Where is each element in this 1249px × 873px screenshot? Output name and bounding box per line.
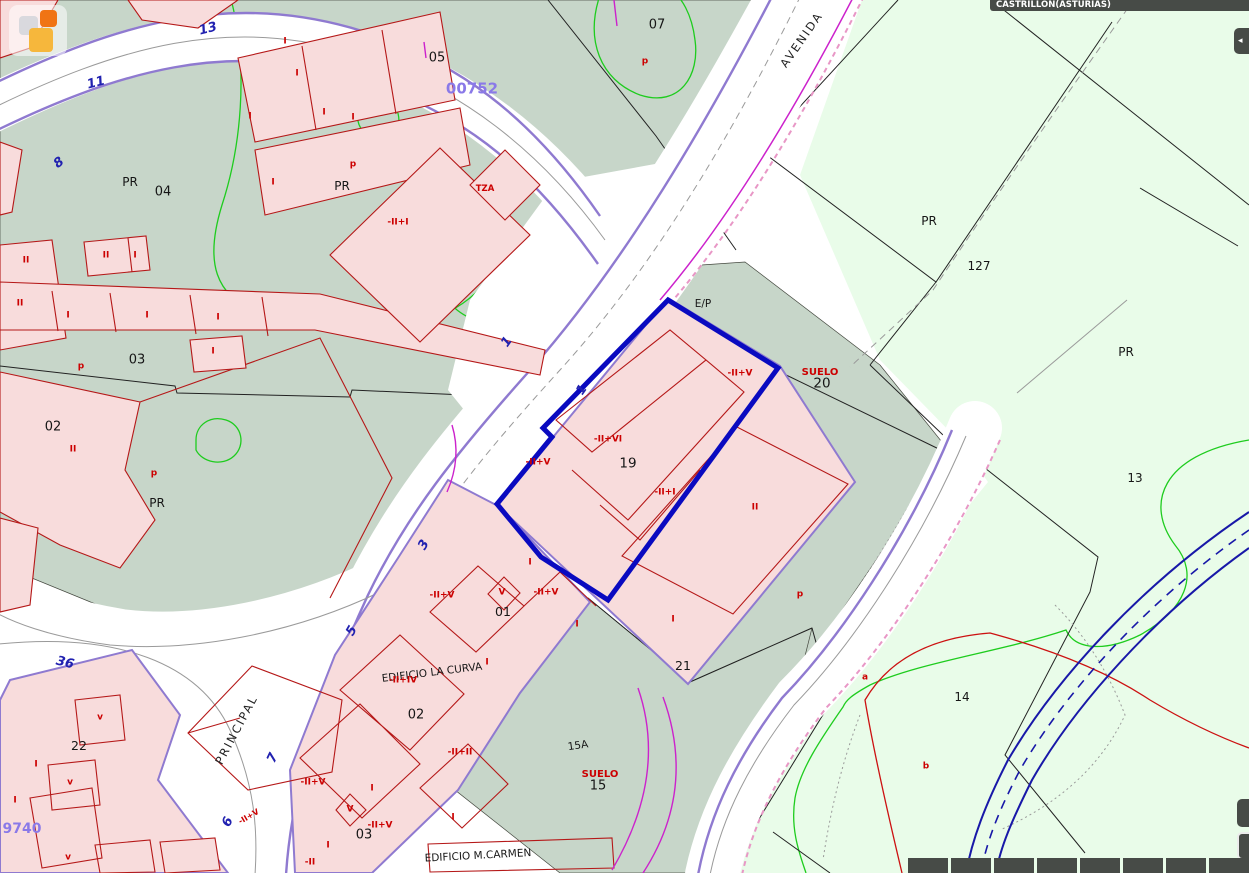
- scale-bar-segment: [994, 858, 1034, 873]
- scale-bar-segment: [908, 858, 948, 873]
- map-tool-button-lower[interactable]: [1237, 832, 1249, 860]
- cadastral-map-viewer: { "header": { "municipality": "CASTRILLO…: [0, 0, 1249, 873]
- map-tool-button-upper[interactable]: [1237, 799, 1249, 827]
- app-logo[interactable]: [9, 5, 67, 56]
- scale-bar-segment: [1037, 858, 1077, 873]
- scale-bar-segment: [1209, 858, 1249, 873]
- scale-bar-segment: [1080, 858, 1120, 873]
- scale-bar-segment: [951, 858, 991, 873]
- scale-bar: [908, 858, 1249, 873]
- logo-amber-square-icon: [29, 28, 53, 52]
- panel-toggle-button[interactable]: ◂: [1234, 28, 1249, 54]
- scale-bar-segment: [1166, 858, 1206, 873]
- map-canvas[interactable]: [0, 0, 1249, 873]
- logo-orange-square-icon: [40, 10, 57, 27]
- municipality-label: CASTRILLON(ASTURIAS): [990, 0, 1249, 11]
- scale-bar-segment: [1123, 858, 1163, 873]
